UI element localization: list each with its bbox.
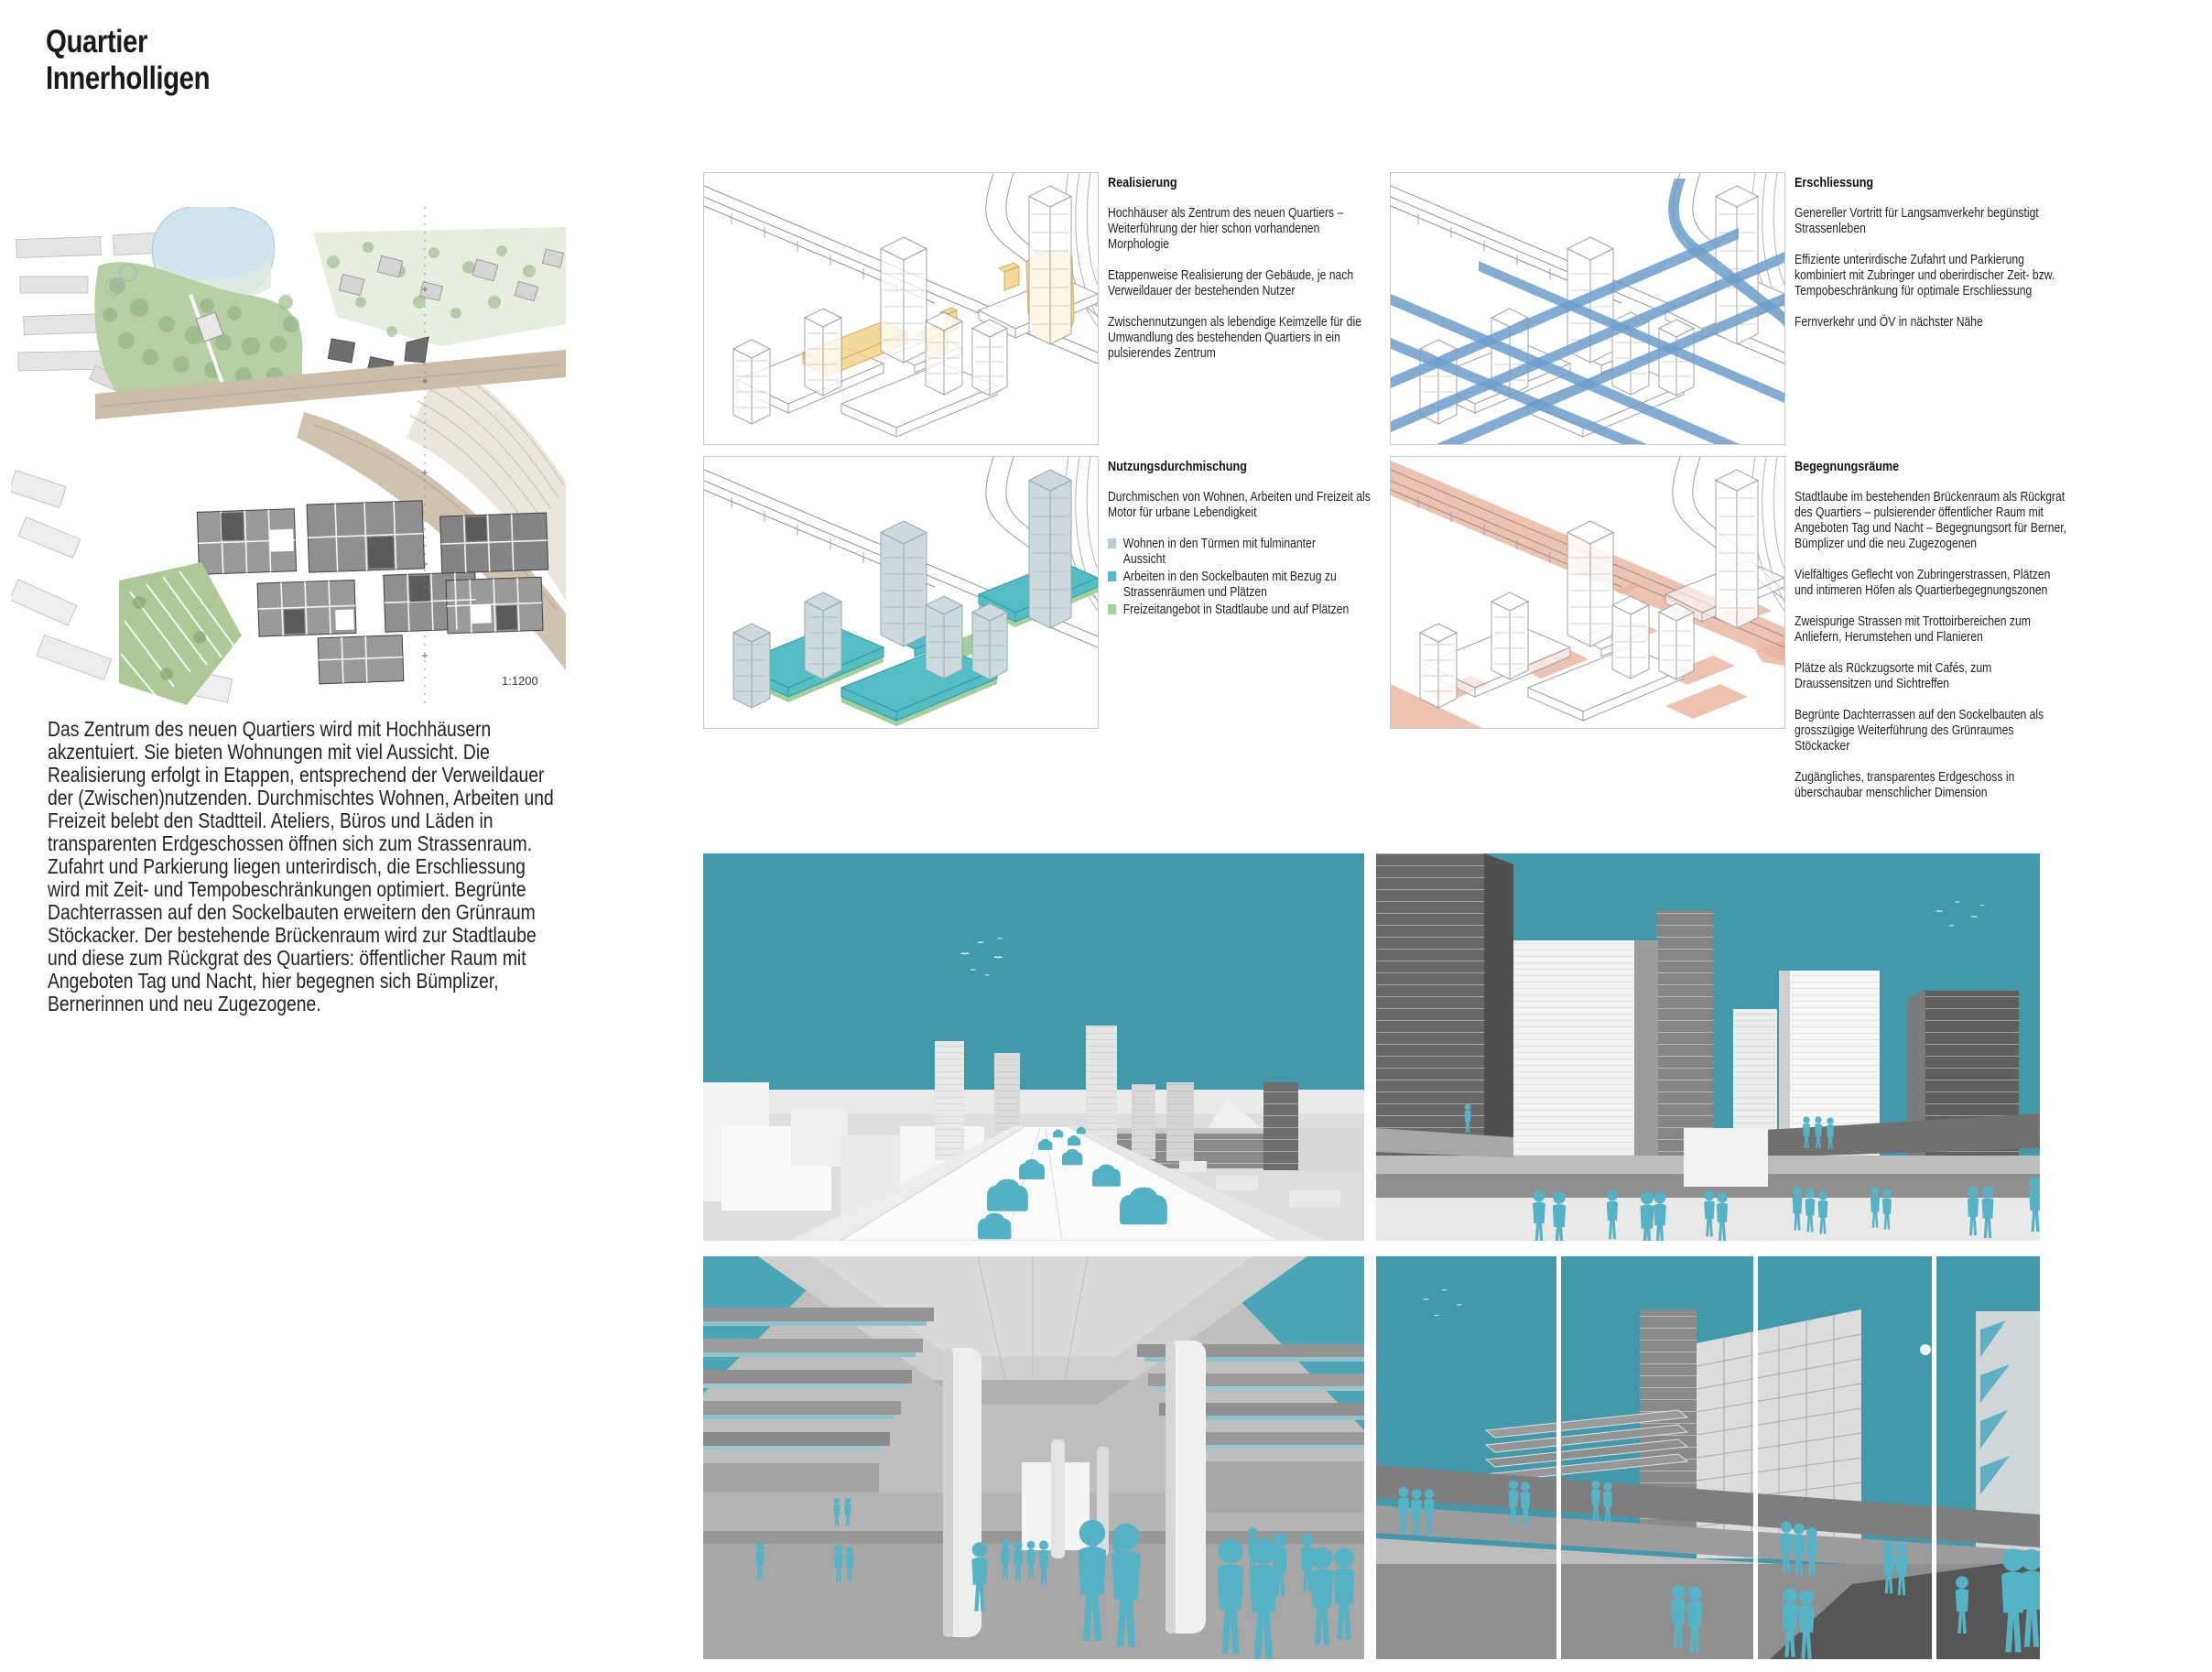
diagram-erschliessung	[1390, 172, 1785, 445]
begegnung-paragraph: Stadtlaube im bestehenden Brückenraum al…	[1795, 490, 2070, 552]
page-title-line1: Quartier	[46, 24, 210, 60]
begegnung-paragraph: Plätze als Rückzugsorte mit Cafés, zum D…	[1795, 661, 2070, 692]
page-title-line2: Innerholligen	[46, 60, 210, 97]
render-highway-view	[703, 853, 1364, 1241]
legend-item-freizeit: Freizeitangebot in Stadtlaube und auf Pl…	[1108, 603, 1383, 618]
page-title: Quartier Innerholligen	[46, 24, 210, 97]
erschliessung-heading: Erschliessung	[1795, 175, 2070, 190]
legend-label: Arbeiten in den Sockelbauten mit Bezug z…	[1123, 570, 1354, 601]
legend-swatch-arbeiten	[1108, 571, 1116, 581]
begegnung-paragraph: Vielfältiges Geflecht von Zubringerstras…	[1795, 568, 2070, 599]
begegnung-paragraph: Begrünte Dachterrassen auf den Sockelbau…	[1795, 708, 2070, 755]
legend-label: Freizeitangebot in Stadtlaube und auf Pl…	[1123, 603, 1349, 618]
section-nutzungsdurchmischung: Nutzungsdurchmischung Durchmischen von W…	[1108, 459, 1383, 620]
render-towers-view	[1376, 853, 2040, 1241]
erschliessung-paragraph: Genereller Vortritt für Langsamverkehr b…	[1795, 206, 2070, 237]
realisierung-paragraph: Etappenweise Realisierung der Gebäude, j…	[1108, 268, 1383, 299]
render-bridge-panels-view	[1376, 1256, 2040, 1659]
begegnung-paragraph: Zugängliches, transparentes Erdgeschoss …	[1795, 770, 2070, 801]
realisierung-paragraph: Hochhäuser als Zentrum des neuen Quartie…	[1108, 206, 1383, 253]
section-realisierung: Realisierung Hochhäuser als Zentrum des …	[1108, 175, 1383, 377]
site-plan-drawing: 1:1200	[11, 207, 566, 707]
nutzungsdurchmischung-heading: Nutzungsdurchmischung	[1108, 459, 1383, 474]
render-underbridge-view	[703, 1256, 1364, 1659]
legend-swatch-wohnen	[1108, 538, 1116, 548]
legend-swatch-freizeit	[1108, 604, 1116, 614]
realisierung-heading: Realisierung	[1108, 175, 1383, 190]
site-plan-map: 1:1200	[11, 207, 566, 707]
erschliessung-paragraph: Fernverkehr und ÖV in nächster Nähe	[1795, 315, 2070, 331]
legend-item-arbeiten: Arbeiten in den Sockelbauten mit Bezug z…	[1108, 570, 1383, 601]
nutzungsdurchmischung-paragraph: Durchmischen von Wohnen, Arbeiten und Fr…	[1108, 490, 1383, 521]
begegnung-paragraph: Zweispurige Strassen mit Trottoirbereich…	[1795, 614, 2070, 646]
balloon	[1920, 1344, 1931, 1355]
diagram-nutzungsdurchmischung	[703, 456, 1099, 729]
nutzung-legend: Wohnen in den Türmen mit fulminanter Aus…	[1108, 537, 1383, 618]
intro-paragraph: Das Zentrum des neuen Quartiers wird mit…	[48, 718, 561, 1015]
diagram-realisierung	[703, 172, 1099, 445]
legend-label: Wohnen in den Türmen mit fulminanter Aus…	[1123, 537, 1354, 568]
section-begegnungsraeume: Begegnungsräume Stadtlaube im bestehende…	[1795, 459, 2070, 817]
begegnungsraeume-heading: Begegnungsräume	[1795, 459, 2070, 474]
legend-item-wohnen: Wohnen in den Türmen mit fulminanter Aus…	[1108, 537, 1383, 568]
erschliessung-paragraph: Effiziente unterirdische Zufahrt und Par…	[1795, 253, 2070, 299]
section-erschliessung: Erschliessung Genereller Vortritt für La…	[1795, 175, 2070, 346]
realisierung-paragraph: Zwischennutzungen als lebendige Keimzell…	[1108, 315, 1383, 362]
diagram-begegnungsraeume	[1390, 456, 1785, 729]
map-scale-label: 1:1200	[502, 674, 538, 688]
